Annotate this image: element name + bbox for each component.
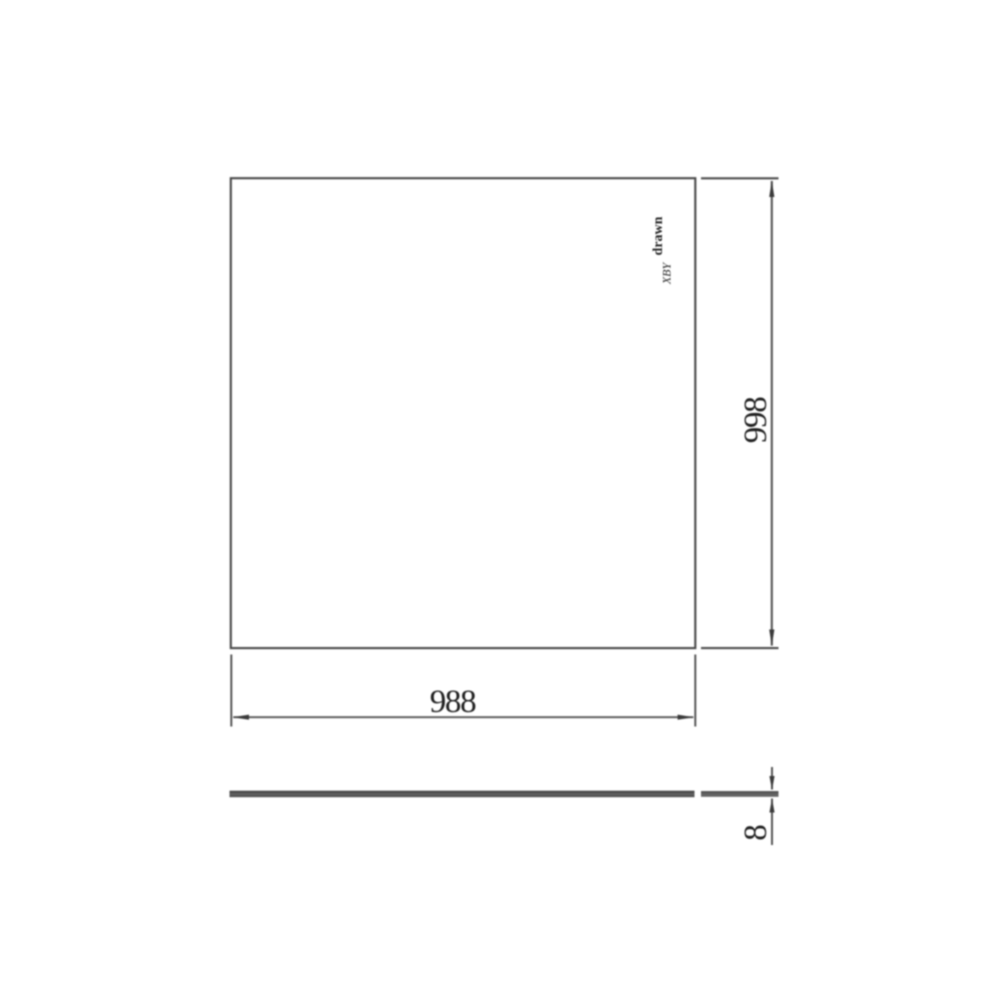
svg-text:8: 8 (738, 824, 774, 841)
svg-text:998: 998 (738, 397, 774, 443)
svg-text:988: 988 (430, 684, 476, 720)
svg-text:drawn: drawn (651, 216, 666, 255)
svg-text:XBY: XBY (660, 262, 674, 286)
